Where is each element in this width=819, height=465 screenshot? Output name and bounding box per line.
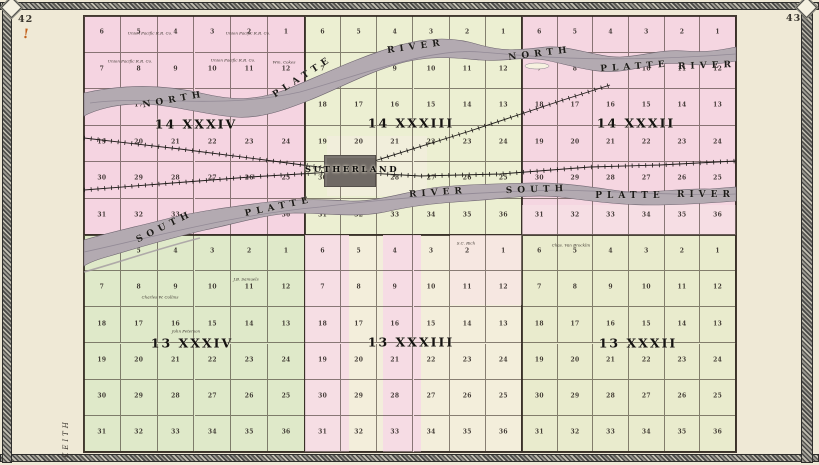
border-left (2, 2, 12, 463)
section-cell: 34 (414, 199, 450, 236)
section-number: 30 (535, 392, 544, 399)
section-number: 30 (535, 175, 544, 182)
section-cell: 11 (665, 271, 701, 307)
section-number: 12 (499, 65, 508, 72)
section-cell: 24 (700, 126, 736, 163)
parcel-owner-label: Union Pacific R.R. Co. (226, 31, 271, 36)
section-number: 34 (642, 429, 651, 436)
section-cell: 31 (522, 199, 558, 236)
section-cell: 29 (341, 380, 377, 416)
section-cell: 14 (450, 89, 486, 126)
section-cell: 2 (450, 16, 486, 53)
section-number: 31 (318, 211, 327, 218)
section-cell: 17 (558, 89, 594, 126)
section-cell: 12 (700, 271, 736, 307)
parcel-owner-label: John Peterson (172, 329, 200, 334)
section-cell: 32 (341, 199, 377, 236)
section-cell: 18 (522, 89, 558, 126)
river-name-label: PLATTE (595, 191, 665, 201)
section-number: 14 (463, 102, 472, 109)
section-number: 11 (245, 284, 254, 291)
section-number: 18 (318, 320, 327, 327)
section-number: 8 (356, 284, 360, 291)
section-number: 10 (427, 65, 436, 72)
section-cell: 11 (450, 53, 486, 90)
section-number: 5 (573, 248, 577, 255)
section-cell: 2 (665, 16, 701, 53)
section-number: 22 (208, 138, 217, 145)
section-cell: 1 (268, 16, 305, 53)
section-number: 12 (713, 284, 722, 291)
section-number: 28 (606, 392, 615, 399)
section-number: 27 (427, 175, 436, 182)
section-cell: 7 (305, 271, 341, 307)
section-number: 6 (537, 248, 541, 255)
section-cell: 13 (486, 307, 522, 343)
section-cell: 17 (558, 307, 594, 343)
section-number: 6 (320, 248, 324, 255)
section-cell: 6 (522, 235, 558, 271)
section-cell: 8 (558, 53, 594, 90)
section-number: 32 (354, 429, 363, 436)
section-number: 31 (97, 211, 106, 218)
section-number: 13 (713, 320, 722, 327)
border-right (801, 2, 813, 463)
section-number: 16 (390, 102, 399, 109)
section-number: 30 (318, 392, 327, 399)
section-number: 34 (208, 429, 217, 436)
section-number: 1 (715, 29, 719, 36)
section-cell: 6 (305, 16, 341, 53)
page-number-right: 43 (786, 13, 801, 24)
section-number: 1 (501, 248, 505, 255)
section-number: 23 (463, 138, 472, 145)
section-number: 21 (171, 356, 180, 363)
section-number: 30 (97, 392, 106, 399)
parcel-owner-label: Union Pacific R.R. Co. (211, 58, 256, 63)
section-cell: 20 (558, 344, 594, 380)
section-cell: 23 (450, 344, 486, 380)
section-number: 22 (427, 138, 436, 145)
section-number: 14 (678, 102, 687, 109)
stray-ink-mark: ! (22, 27, 30, 43)
section-number: 6 (320, 29, 324, 36)
section-number: 12 (282, 65, 291, 72)
section-number: 25 (713, 175, 722, 182)
page-number-left: 42 (18, 14, 33, 25)
section-number: 1 (284, 248, 288, 255)
township-label: 13 XXXIII (368, 335, 454, 350)
section-number: 2 (680, 248, 684, 255)
section-number: 16 (390, 320, 399, 327)
section-number: 24 (499, 138, 508, 145)
section-cell: 22 (629, 126, 665, 163)
section-number: 13 (282, 320, 291, 327)
section-number: 33 (606, 429, 615, 436)
section-number: 22 (208, 356, 217, 363)
section-number: 12 (282, 284, 291, 291)
section-number: 25 (499, 175, 508, 182)
section-number: 10 (427, 284, 436, 291)
section-cell: 25 (486, 380, 522, 416)
section-number: 27 (427, 392, 436, 399)
section-cell: 9 (377, 53, 413, 90)
section-number: 8 (356, 65, 360, 72)
section-number: 20 (571, 138, 580, 145)
section-number: 4 (393, 29, 397, 36)
section-number: 21 (390, 138, 399, 145)
section-number: 14 (463, 320, 472, 327)
river-name-label: RIVER (678, 60, 736, 72)
section-cell: 24 (268, 344, 305, 380)
section-number: 16 (606, 320, 615, 327)
section-number: 31 (97, 429, 106, 436)
section-cell: 28 (593, 380, 629, 416)
section-number: 23 (245, 356, 254, 363)
section-cell: 10 (629, 271, 665, 307)
section-cell: 32 (341, 416, 377, 452)
section-cell: 3 (629, 16, 665, 53)
section-cell: 2 (665, 235, 701, 271)
section-number: 29 (571, 175, 580, 182)
section-number: 29 (134, 175, 143, 182)
section-cell: 31 (84, 416, 121, 452)
section-cell: 19 (522, 126, 558, 163)
section-number: 26 (463, 392, 472, 399)
section-number: 34 (208, 211, 217, 218)
section-number: 36 (282, 211, 291, 218)
section-number: 17 (571, 320, 580, 327)
section-number: 36 (713, 429, 722, 436)
section-cell: 13 (486, 89, 522, 126)
section-cell: 35 (450, 416, 486, 452)
section-number: 22 (427, 356, 436, 363)
section-number: 9 (608, 284, 612, 291)
parcel-owner-label: J.B. Samuels (233, 277, 258, 282)
section-cell: 9 (158, 53, 195, 90)
section-number: 16 (606, 102, 615, 109)
section-number: 17 (134, 320, 143, 327)
township-label: 14 XXXIII (368, 116, 454, 131)
section-cell: 33 (377, 416, 413, 452)
section-number: 9 (173, 65, 177, 72)
section-cell: 23 (231, 344, 268, 380)
section-cell: 14 (231, 307, 268, 343)
section-number: 34 (642, 211, 651, 218)
section-cell: 33 (593, 416, 629, 452)
section-number: 29 (571, 392, 580, 399)
section-number: 2 (680, 29, 684, 36)
section-number: 7 (100, 284, 104, 291)
section-cell: 19 (305, 344, 341, 380)
section-number: 24 (282, 138, 291, 145)
section-cell: 34 (195, 199, 232, 236)
section-number: 28 (390, 175, 399, 182)
section-cell: 30 (84, 380, 121, 416)
section-cell: 36 (700, 416, 736, 452)
section-cell: 23 (665, 126, 701, 163)
atlas-page-spread: 42 43 ! KEITH 65432178910111218171615141… (0, 0, 819, 465)
section-cell: 36 (700, 199, 736, 236)
section-number: 23 (678, 138, 687, 145)
section-cell: 1 (700, 235, 736, 271)
section-cell: 24 (268, 126, 305, 163)
section-cell: 25 (268, 380, 305, 416)
section-number: 34 (427, 429, 436, 436)
sutherland-town-label: SUTHERLAND (305, 165, 399, 175)
section-number: 11 (245, 65, 254, 72)
section-number: 26 (678, 392, 687, 399)
section-cell: 1 (700, 16, 736, 53)
section-number: 5 (573, 29, 577, 36)
section-cell: 18 (305, 307, 341, 343)
section-cell: 8 (341, 53, 377, 90)
section-number: 19 (97, 138, 106, 145)
section-cell: 32 (121, 416, 158, 452)
section-cell: 24 (486, 344, 522, 380)
section-number: 31 (535, 429, 544, 436)
section-cell: 33 (377, 199, 413, 236)
section-number: 18 (535, 102, 544, 109)
section-number: 26 (245, 392, 254, 399)
section-number: 13 (282, 102, 291, 109)
section-number: 22 (642, 356, 651, 363)
section-number: 10 (642, 284, 651, 291)
section-cell: 18 (84, 307, 121, 343)
section-cell: 36 (268, 416, 305, 452)
section-number: 18 (97, 320, 106, 327)
section-number: 8 (573, 65, 577, 72)
section-number: 10 (208, 284, 217, 291)
section-number: 32 (571, 211, 580, 218)
section-number: 18 (97, 102, 106, 109)
section-cell: 35 (231, 416, 268, 452)
section-cell: 20 (558, 126, 594, 163)
section-cell: 4 (377, 235, 413, 271)
section-cell: 34 (195, 416, 232, 452)
section-number: 26 (678, 175, 687, 182)
section-number: 29 (134, 392, 143, 399)
section-number: 15 (642, 102, 651, 109)
section-number: 12 (499, 284, 508, 291)
section-cell: 10 (195, 271, 232, 307)
section-number: 13 (713, 102, 722, 109)
section-number: 5 (136, 248, 140, 255)
section-number: 31 (318, 429, 327, 436)
section-cell: 5 (558, 235, 594, 271)
section-number: 18 (535, 320, 544, 327)
section-number: 7 (320, 284, 324, 291)
section-number: 20 (571, 356, 580, 363)
section-number: 15 (427, 102, 436, 109)
section-number: 27 (208, 392, 217, 399)
section-cell: 32 (558, 199, 594, 236)
section-number: 4 (393, 248, 397, 255)
section-cell: 30 (84, 162, 121, 199)
section-cell: 8 (341, 271, 377, 307)
section-number: 22 (642, 138, 651, 145)
section-cell: 28 (158, 162, 195, 199)
section-number: 26 (245, 175, 254, 182)
section-number: 4 (173, 248, 177, 255)
township-label: 14 XXXIV (155, 117, 237, 132)
section-number: 24 (499, 356, 508, 363)
section-cell: 1 (268, 235, 305, 271)
section-number: 25 (282, 175, 291, 182)
section-cell: 5 (341, 16, 377, 53)
section-number: 3 (429, 29, 433, 36)
section-cell: 33 (593, 199, 629, 236)
section-number: 18 (318, 102, 327, 109)
section-cell: 32 (558, 416, 594, 452)
section-number: 24 (713, 356, 722, 363)
section-cell: 21 (593, 126, 629, 163)
section-cell: 19 (84, 126, 121, 163)
section-cell: 30 (522, 380, 558, 416)
section-cell: 3 (195, 235, 232, 271)
section-number: 27 (208, 175, 217, 182)
section-number: 17 (354, 320, 363, 327)
section-number: 13 (499, 320, 508, 327)
section-number: 28 (606, 175, 615, 182)
section-number: 24 (713, 138, 722, 145)
section-cell: 29 (558, 380, 594, 416)
section-cell: 34 (414, 416, 450, 452)
section-number: 19 (535, 356, 544, 363)
section-number: 21 (171, 138, 180, 145)
section-cell: 14 (450, 307, 486, 343)
section-number: 10 (208, 65, 217, 72)
section-cell: 10 (414, 53, 450, 90)
section-number: 28 (171, 392, 180, 399)
section-number: 25 (499, 392, 508, 399)
section-cell: 6 (305, 235, 341, 271)
section-cell: 11 (450, 271, 486, 307)
section-cell: 18 (84, 89, 121, 126)
section-number: 11 (463, 65, 472, 72)
section-number: 20 (134, 356, 143, 363)
section-number: 3 (429, 248, 433, 255)
section-cell: 26 (665, 380, 701, 416)
section-cell: 26 (231, 162, 268, 199)
section-cell: 8 (121, 271, 158, 307)
section-number: 13 (499, 102, 508, 109)
section-number: 35 (463, 429, 472, 436)
section-number: 23 (463, 356, 472, 363)
section-number: 11 (463, 284, 472, 291)
section-cell: 4 (158, 235, 195, 271)
section-number: 19 (97, 356, 106, 363)
section-cell: 29 (121, 162, 158, 199)
section-cell: 24 (486, 126, 522, 163)
border-top (0, 2, 819, 10)
township-label: 13 XXXIV (151, 336, 233, 351)
section-cell: 19 (522, 344, 558, 380)
section-number: 17 (354, 102, 363, 109)
section-number: 4 (608, 29, 612, 36)
section-cell: 9 (593, 271, 629, 307)
section-number: 32 (354, 211, 363, 218)
section-number: 2 (465, 248, 469, 255)
section-number: 8 (136, 284, 140, 291)
section-cell: 26 (231, 380, 268, 416)
section-cell: 28 (377, 380, 413, 416)
section-number: 32 (571, 429, 580, 436)
section-cell: 13 (700, 89, 736, 126)
river-name-label: RIVER (677, 190, 735, 200)
section-cell: 29 (121, 380, 158, 416)
section-number: 33 (390, 429, 399, 436)
section-number: 24 (282, 356, 291, 363)
section-number: 19 (318, 356, 327, 363)
section-cell: 6 (84, 235, 121, 271)
section-number: 23 (678, 356, 687, 363)
parcel-owner-label: Wm. Cokes (273, 60, 296, 65)
adjacent-county-label: KEITH (62, 408, 70, 458)
parcel-owner-label: Union Pacific R.R. Co. (108, 59, 153, 64)
section-number: 20 (354, 138, 363, 145)
section-cell: 13 (700, 307, 736, 343)
section-number: 14 (678, 320, 687, 327)
section-number: 32 (134, 211, 143, 218)
section-cell: 35 (450, 199, 486, 236)
section-number: 36 (499, 429, 508, 436)
section-cell: 10 (414, 271, 450, 307)
section-number: 27 (642, 175, 651, 182)
section-cell: 2 (231, 235, 268, 271)
section-cell: 20 (121, 126, 158, 163)
section-number: 23 (245, 138, 254, 145)
section-cell: 18 (305, 89, 341, 126)
section-number: 6 (100, 29, 104, 36)
section-number: 36 (713, 211, 722, 218)
section-cell: 21 (377, 126, 413, 163)
section-cell: 7 (84, 271, 121, 307)
section-cell: 24 (700, 344, 736, 380)
section-number: 35 (678, 429, 687, 436)
section-cell: 1 (486, 16, 522, 53)
section-number: 32 (134, 429, 143, 436)
section-number: 1 (284, 29, 288, 36)
section-number: 9 (393, 284, 397, 291)
section-cell: 22 (414, 126, 450, 163)
section-cell: 12 (486, 271, 522, 307)
section-number: 3 (210, 29, 214, 36)
section-cell: 25 (700, 380, 736, 416)
section-number: 4 (608, 248, 612, 255)
section-number: 19 (535, 138, 544, 145)
section-cell: 6 (84, 16, 121, 53)
section-cell: 27 (629, 380, 665, 416)
section-number: 31 (535, 211, 544, 218)
section-number: 25 (282, 392, 291, 399)
section-number: 20 (354, 356, 363, 363)
section-number: 7 (100, 65, 104, 72)
border-bottom (0, 454, 819, 462)
section-cell: 5 (341, 235, 377, 271)
parcel-owner-label: Chas. Van Brocklin (552, 243, 590, 248)
section-number: 30 (97, 175, 106, 182)
section-number: 27 (642, 392, 651, 399)
section-number: 35 (678, 211, 687, 218)
section-cell: 13 (268, 307, 305, 343)
section-number: 7 (537, 284, 541, 291)
section-number: 5 (356, 248, 360, 255)
section-number: 6 (100, 248, 104, 255)
section-cell: 28 (158, 380, 195, 416)
section-cell: 8 (558, 271, 594, 307)
parcel-owner-label: Charles W. Collins (142, 295, 179, 300)
